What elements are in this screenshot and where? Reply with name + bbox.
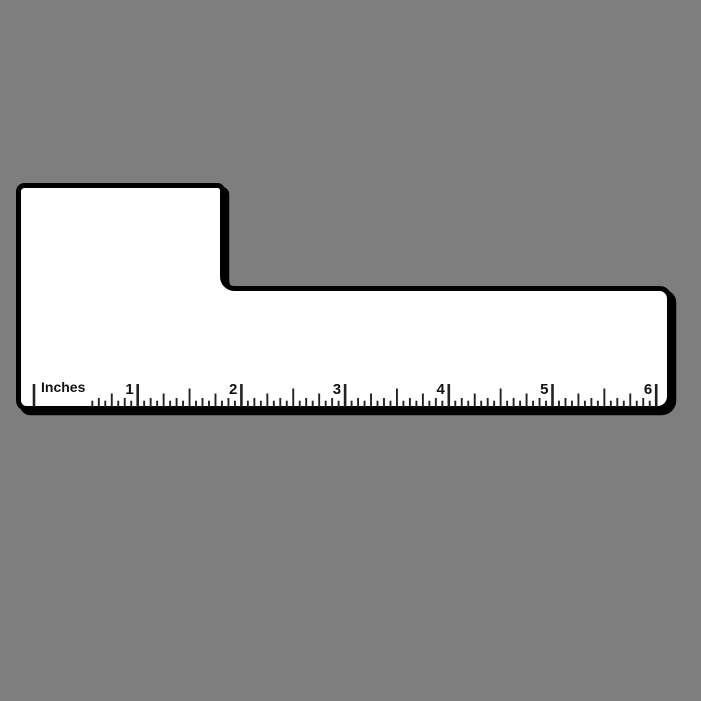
tick-mark <box>189 389 191 408</box>
tick-mark <box>545 401 547 407</box>
inch-number-1: 1 <box>125 381 133 398</box>
tick-mark <box>571 401 573 407</box>
tick-mark <box>234 401 236 407</box>
tick-mark <box>422 394 424 408</box>
tick-mark <box>357 398 359 407</box>
tick-mark <box>532 401 534 407</box>
tick-mark <box>616 398 618 407</box>
tick-mark <box>227 398 229 407</box>
tick-mark <box>649 401 651 407</box>
tick-mark <box>383 398 385 407</box>
tick-mark <box>370 394 372 408</box>
tick-mark <box>136 384 139 407</box>
tick-mark <box>279 398 281 407</box>
tick-mark <box>117 401 119 407</box>
tick-mark <box>33 384 36 407</box>
tick-mark <box>390 401 392 407</box>
ruler-body <box>19 186 670 409</box>
tick-mark <box>461 398 463 407</box>
tick-mark <box>286 401 288 407</box>
ruler-graphic: 123456 Inches <box>0 0 701 701</box>
tick-mark <box>636 401 638 407</box>
tick-mark <box>325 401 327 407</box>
tick-mark <box>526 394 528 408</box>
tick-mark <box>519 401 521 407</box>
tick-mark <box>454 401 456 407</box>
tick-mark <box>474 394 476 408</box>
tick-mark <box>292 389 294 408</box>
tick-mark <box>487 398 489 407</box>
tick-mark <box>305 398 307 407</box>
tick-mark <box>448 384 451 407</box>
tick-mark <box>642 398 644 407</box>
tick-mark <box>428 401 430 407</box>
inch-number-3: 3 <box>333 381 341 398</box>
tick-mark <box>551 384 554 407</box>
inch-number-2: 2 <box>229 381 237 398</box>
tick-mark <box>338 401 340 407</box>
tick-mark <box>351 401 353 407</box>
tick-mark <box>344 384 347 407</box>
tick-mark <box>655 384 658 407</box>
tick-mark <box>104 401 106 407</box>
tick-mark <box>506 401 508 407</box>
tick-mark <box>195 401 197 407</box>
tick-mark <box>377 401 379 407</box>
tick-mark <box>441 401 443 407</box>
ruler-unit-label: Inches <box>41 379 86 395</box>
tick-mark <box>221 401 223 407</box>
tick-mark <box>169 401 171 407</box>
tick-mark <box>480 401 482 407</box>
tick-mark <box>208 401 210 407</box>
tick-mark <box>577 394 579 408</box>
inch-number-6: 6 <box>644 381 652 398</box>
tick-mark <box>260 401 262 407</box>
tick-mark <box>215 394 217 408</box>
tick-mark <box>299 401 301 407</box>
tick-mark <box>603 389 605 408</box>
tick-mark <box>247 401 249 407</box>
tick-mark <box>312 401 314 407</box>
tick-mark <box>318 394 320 408</box>
tick-mark <box>584 401 586 407</box>
tick-mark <box>150 398 152 407</box>
tick-mark <box>111 394 113 408</box>
tick-mark <box>176 398 178 407</box>
tick-mark <box>331 398 333 407</box>
tick-mark <box>597 401 599 407</box>
tick-mark <box>202 398 204 407</box>
inch-number-5: 5 <box>540 381 548 398</box>
inch-number-4: 4 <box>436 381 445 398</box>
tick-mark <box>253 398 255 407</box>
tick-mark <box>364 401 366 407</box>
tick-mark <box>98 398 100 407</box>
tick-mark <box>240 384 243 407</box>
tick-mark <box>402 401 404 407</box>
tick-mark <box>143 401 145 407</box>
tick-mark <box>493 401 495 407</box>
tick-mark <box>396 389 398 408</box>
tick-mark <box>130 401 132 407</box>
image-background: 123456 Inches <box>0 0 701 701</box>
tick-mark <box>273 401 275 407</box>
tick-mark <box>124 398 126 407</box>
tick-mark <box>409 398 411 407</box>
tick-mark <box>266 394 268 408</box>
tick-mark <box>415 401 417 407</box>
tick-mark <box>163 394 165 408</box>
tick-mark <box>156 401 158 407</box>
tick-mark <box>610 401 612 407</box>
tick-mark <box>539 398 541 407</box>
tick-mark <box>590 398 592 407</box>
tick-mark <box>629 394 631 408</box>
tick-mark <box>623 401 625 407</box>
tick-mark <box>435 398 437 407</box>
tick-mark <box>91 401 93 407</box>
tick-mark <box>182 401 184 407</box>
tick-mark <box>513 398 515 407</box>
tick-mark <box>565 398 567 407</box>
tick-mark <box>558 401 560 407</box>
tick-mark <box>500 389 502 408</box>
tick-mark <box>467 401 469 407</box>
